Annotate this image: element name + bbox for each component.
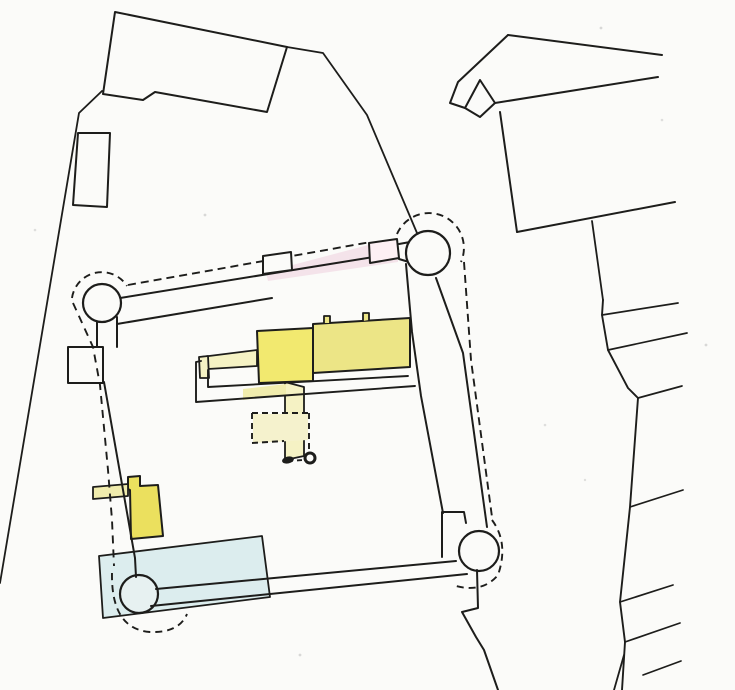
castle-site-plan-drawing [0,0,735,690]
west-wall-square [68,347,103,383]
castle-site-plan-page [0,0,735,690]
square-tower-keep [257,328,313,383]
paper-speckle [600,27,603,30]
north-wall-buttress-west [263,252,292,274]
se-corner-tower [459,531,499,571]
range-chimney-east [363,313,369,321]
main-range-building [313,318,410,373]
nw-strip-building [73,133,110,207]
well-marker-ring [305,453,315,463]
sw-corner-tower [120,575,158,613]
paper-speckle [34,229,37,232]
nw-corner-tower [83,284,121,322]
paper-speckle [584,479,586,481]
paper-speckle [299,654,302,657]
courtyard-fill [253,414,308,443]
ne-corner-tower [406,231,450,275]
paper-speckle [204,214,207,217]
north-wall-buttress-east [369,239,399,263]
west-outbuilding [128,476,163,539]
range-chimney-west [324,316,330,323]
paper-speckle [661,119,664,122]
paper-speckle [705,344,708,347]
paper-speckle [544,424,547,427]
